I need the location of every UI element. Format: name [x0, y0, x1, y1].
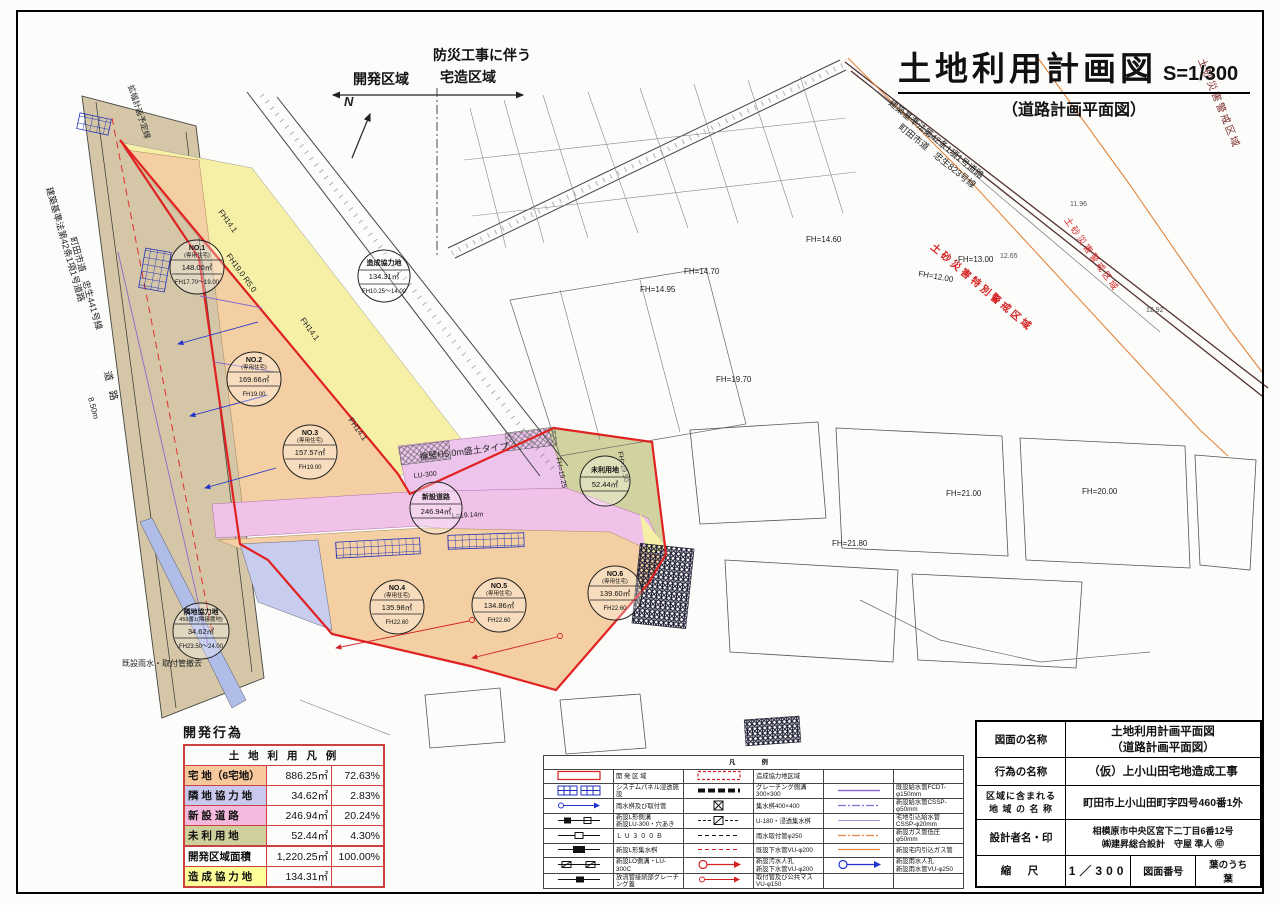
- svg-text:(専用住宅): (専用住宅): [297, 436, 323, 444]
- sheet-number-label: 図面番号: [1131, 855, 1196, 887]
- north-label: N: [344, 94, 354, 109]
- svg-text:FH19.00: FH19.00: [298, 465, 322, 471]
- legend-label: 新設LO側溝・LU-300C: [614, 858, 684, 873]
- legend-row: 開 発 区 域 造成協力地区域: [544, 770, 964, 784]
- dim-850: 8.50m: [86, 396, 101, 420]
- svg-text:(専用住宅): (専用住宅): [486, 589, 512, 597]
- svg-text:148.00㎡: 148.00㎡: [182, 263, 213, 272]
- title-subtitle: （道路計画平面図）: [898, 96, 1250, 120]
- titleblock-row: 縮 尺 1／300 図面番号 葉のうち 葉: [976, 855, 1261, 887]
- svg-text:157.57㎡: 157.57㎡: [295, 448, 326, 457]
- table-row: 隣 地 協 力 地 34.62㎡ 2.83%: [184, 786, 384, 806]
- sheet-number-value: 葉のうち 葉: [1196, 855, 1261, 887]
- svg-text:NO.2: NO.2: [246, 357, 262, 364]
- svg-text:(専用住宅): (専用住宅): [241, 363, 267, 371]
- landuse-label: 新 設 道 路: [184, 806, 266, 826]
- table-row: 新 設 道 路 246.94㎡ 20.24%: [184, 806, 384, 826]
- legend-symbol-l-basin-icon: [544, 844, 614, 858]
- svg-text:135.98㎡: 135.98㎡: [382, 603, 413, 612]
- landuse-label: 造 成 協 力 地: [184, 867, 266, 888]
- title-block: 図面の名称 土地利用計画平面図 （道路計画平面図） 行為の名称 （仮）上小山田宅…: [975, 720, 1262, 888]
- svg-text:NO.4: NO.4: [389, 585, 405, 592]
- legend-symbol-rain-pipe-icon: [684, 829, 754, 844]
- removal-note: 既設雨水・取付管撤去: [122, 658, 202, 668]
- titleblock-value: 町田市上小山田町字四号460番1外: [1066, 785, 1262, 819]
- landuse-area: 246.94㎡: [266, 806, 331, 826]
- circle-new-road: 新設道路 246.94㎡: [410, 482, 462, 534]
- svg-text:(専用住宅): (専用住宅): [184, 251, 210, 259]
- legend-symbol-rain-basin-icon: [544, 799, 614, 814]
- legend-row: システムパネル浸透施設 グレーチング側溝300×300 既設給水管FCDT-φ1…: [544, 784, 964, 799]
- titleblock-label: 設計者名・印: [976, 819, 1066, 855]
- svg-text:FH19.00: FH19.00: [242, 392, 266, 398]
- scale-label: 縮 尺: [976, 855, 1066, 887]
- table-row: 宅 地（6宅地） 886.25㎡ 72.63%: [184, 766, 384, 786]
- legend-symbol-sewer-manhole-icon: [684, 858, 754, 873]
- drawing-sheet: 開発区域 防災工事に伴う 宅造区域 N 建築基準法第42条1項1号道路 町田市道…: [0, 0, 1280, 905]
- legend-symbol-lo-gutter-icon: [544, 858, 614, 873]
- legend-symbol-grating-gutter-icon: [684, 784, 754, 799]
- circle-unused-land: 未利用地 52.44㎡: [580, 456, 630, 506]
- titleblock-row: 図面の名称 土地利用計画平面図 （道路計画平面図）: [976, 721, 1261, 757]
- legend-label: 開 発 区 域: [614, 770, 684, 784]
- svg-text:246.94㎡: 246.94㎡: [421, 507, 452, 516]
- legend-symbol-service-water-icon: [824, 814, 894, 829]
- titleblock-label: 図面の名称: [976, 721, 1066, 757]
- landuse-table: 開発行為 土 地 利 用 凡 例 宅 地（6宅地） 886.25㎡ 72.63%…: [183, 722, 385, 888]
- svg-text:未利用地: 未利用地: [591, 465, 619, 474]
- legend-row: 雨水桝及び取付管 集水桝400×400 新設給水管CSSP-φ50mm: [544, 799, 964, 814]
- legend-symbol-catch-basin-icon: [684, 799, 754, 814]
- legend-row: 放流管接続部グレーチング蓋 取付管及び公共マス VU-φ150: [544, 873, 964, 888]
- landuse-area: 134.31㎡: [266, 867, 331, 888]
- legend-label: グレーチング側溝300×300: [754, 784, 824, 799]
- lot-circle-no3: NO.3 (専用住宅) 157.57㎡ FH19.00: [283, 425, 337, 479]
- landuse-header: 土 地 利 用 凡 例: [184, 745, 384, 766]
- landuse-pct: 4.30%: [332, 826, 384, 847]
- legend-symbol-blank-icon: [824, 873, 894, 888]
- legend-symbol-blank-icon: [824, 770, 894, 784]
- legend-symbol-l-gutter-icon: [544, 814, 614, 829]
- landuse-label: 未 利 用 地: [184, 826, 266, 847]
- legend-label: 既設給水管FCDT-φ150mm: [894, 784, 964, 799]
- legend-symbol-gas-main-icon: [824, 829, 894, 844]
- lot-circle-no1: NO.1 (専用住宅) 148.00㎡ FH17.70～19.00: [170, 240, 224, 294]
- svg-text:造成協力地: 造成協力地: [367, 258, 402, 267]
- titleblock-row: 区域に含まれる 地 域 の 名 称 町田市上小山田町字四号460番1外: [976, 785, 1261, 819]
- legend-label: 既設下水管VU-φ200: [754, 844, 824, 858]
- legend-symbol-development-area-icon: [544, 770, 614, 784]
- svg-text:FH22.60: FH22.60: [385, 620, 409, 626]
- table-row: 未 利 用 地 52.44㎡ 4.30%: [184, 826, 384, 847]
- fh-12-00: FH=12.00: [918, 269, 955, 284]
- landuse-area: 1,220.25㎡: [266, 846, 331, 867]
- svg-text:NO.3: NO.3: [302, 430, 318, 437]
- legend-label: [894, 873, 964, 888]
- fh-20-00: FH=20.00: [1082, 487, 1118, 496]
- zone-label-right-2: 宅造区域: [440, 69, 496, 85]
- legend-label: 新設雨水人孔 新設雨水管VU-φ250: [894, 858, 964, 873]
- legend-row: 新設L形集水桝 既設下水管VU-φ200 新設宅内引込ガス管: [544, 844, 964, 858]
- legend-label: 新設L形側溝 新設LU-300・穴あき: [614, 814, 684, 829]
- legend-label: 新設給水管CSSP-φ50mm: [894, 799, 964, 814]
- titleblock-value: 相模原市中央区宮下二丁目6番12号 ㈱建昇総合設計 守屋 準人 ㊞: [1066, 819, 1262, 855]
- legend-row: Ｌ Ｕ ３ ０ ０ Ｂ 雨水取付管φ250 新設ガス管低圧φ50mm: [544, 829, 964, 844]
- legend-symbol-grading-zone-icon: [684, 770, 754, 784]
- legend-label: 新設ガス管低圧φ50mm: [894, 829, 964, 844]
- legend-label: 宅地引込給水管 CSSP-φ20mm: [894, 814, 964, 829]
- zone-label-left: 開発区域: [353, 71, 409, 87]
- legend-title: 凡 例: [544, 756, 964, 770]
- legend-row: 新設LO側溝・LU-300C 新設汚水人孔 新設下水管VU-φ200 新設雨水人…: [544, 858, 964, 873]
- legend-symbol-panel-icon: [544, 784, 614, 799]
- fh-14-60: FH=14.60: [806, 235, 842, 244]
- page-title: 土地利用計画図: [898, 50, 1157, 87]
- svg-text:FH22.60: FH22.60: [487, 618, 511, 624]
- svg-text:459番1(隣接農地): 459番1(隣接農地): [179, 615, 223, 623]
- landuse-pct: 72.63%: [332, 766, 384, 786]
- svg-text:139.60㎡: 139.60㎡: [600, 589, 631, 598]
- legend-symbol-outlet-grating-icon: [544, 873, 614, 888]
- legend-row: 新設L形側溝 新設LU-300・穴あき U-180・浸透集水桝 宅地引込給水管 …: [544, 814, 964, 829]
- drawing-title: 土地利用計画図S=1/300 （道路計画平面図）: [898, 42, 1250, 120]
- legend-label: 放流管接続部グレーチング蓋: [614, 873, 684, 888]
- landuse-label: 宅 地（6宅地）: [184, 766, 266, 786]
- landuse-header-row: 土 地 利 用 凡 例: [184, 745, 384, 766]
- north-arrow-icon: [352, 114, 370, 158]
- lot-circle-no4: NO.4 (専用住宅) 135.98㎡ FH22.60: [370, 580, 424, 634]
- legend-title-row: 凡 例: [544, 756, 964, 770]
- lot-circle-no5: NO.5 (専用住宅) 134.86㎡ FH22.60: [472, 578, 526, 632]
- svg-text:FH17.70～19.00: FH17.70～19.00: [175, 280, 220, 286]
- spot-elev-3: 11.96: [1070, 201, 1087, 208]
- legend-label: U-180・浸透集水桝: [754, 814, 824, 829]
- legend-label: Ｌ Ｕ ３ ０ ０ Ｂ: [614, 829, 684, 844]
- legend-label: 雨水桝及び取付管: [614, 799, 684, 814]
- svg-text:FH22.60: FH22.60: [603, 606, 627, 612]
- svg-text:169.66㎡: 169.66㎡: [239, 375, 270, 384]
- titleblock-label: 区域に含まれる 地 域 の 名 称: [976, 785, 1066, 819]
- legend-label: 集水桝400×400: [754, 799, 824, 814]
- hazard-zone-label-2: 土砂災害警戒区域: [1062, 215, 1121, 293]
- svg-text:NO.1: NO.1: [189, 245, 205, 252]
- legend-symbol-u180-icon: [684, 814, 754, 829]
- titleblock-value: （仮）上小山田宅地造成工事: [1066, 757, 1262, 785]
- fh-13-00: FH=13.00: [958, 255, 994, 264]
- landuse-pct: 100.00%: [332, 846, 384, 867]
- svg-text:NO.5: NO.5: [491, 583, 507, 590]
- spot-elev-2: 12.92: [1146, 307, 1164, 314]
- legend-table: 凡 例 開 発 区 域 造成協力地区域 システムパネル浸透施設 グレーチング側溝…: [543, 755, 964, 889]
- landuse-label: 開発区域面積: [184, 846, 266, 867]
- svg-text:隣地協力地: 隣地協力地: [184, 607, 219, 616]
- svg-text:52.44㎡: 52.44㎡: [592, 480, 619, 489]
- legend-symbol-service-gas-icon: [824, 844, 894, 858]
- titleblock-label: 行為の名称: [976, 757, 1066, 785]
- legend-label: システムパネル浸透施設: [614, 784, 684, 799]
- svg-text:FH23.50～24.00: FH23.50～24.00: [179, 644, 224, 650]
- legend-label: 新設宅内引込ガス管: [894, 844, 964, 858]
- legend-label: 新設L形集水桝: [614, 844, 684, 858]
- titleblock-row: 行為の名称 （仮）上小山田宅地造成工事: [976, 757, 1261, 785]
- landuse-caption: 開発行為: [183, 722, 385, 741]
- svg-text:(専用住宅): (専用住宅): [384, 591, 410, 599]
- svg-text:134.31㎡: 134.31㎡: [369, 272, 400, 281]
- landuse-area: 886.25㎡: [266, 766, 331, 786]
- legend-symbol-water-main-icon: [824, 784, 894, 799]
- svg-text:FH10.25～14.00: FH10.25～14.00: [362, 289, 407, 295]
- svg-text:新設道路: 新設道路: [422, 492, 451, 501]
- landuse-area: 52.44㎡: [266, 826, 331, 847]
- landuse-pct: 20.24%: [332, 806, 384, 826]
- fh-19-70: FH=19.70: [716, 375, 752, 384]
- spot-elev-1: 12.65: [1000, 253, 1018, 260]
- svg-text:(専用住宅): (専用住宅): [602, 577, 628, 585]
- table-row: 造 成 協 力 地 134.31㎡: [184, 867, 384, 888]
- legend-symbol-existing-sewer-icon: [684, 844, 754, 858]
- svg-text:134.86㎡: 134.86㎡: [484, 601, 515, 610]
- legend-symbol-rain-manhole-icon: [824, 858, 894, 873]
- fh-14-70: FH=14.70: [684, 267, 720, 276]
- lot-circle-no2: NO.2 (専用住宅) 169.66㎡ FH19.00: [227, 352, 281, 406]
- titleblock-row: 設計者名・印 相模原市中央区宮下二丁目6番12号 ㈱建昇総合設計 守屋 準人 ㊞: [976, 819, 1261, 855]
- table-row: 開発区域面積 1,220.25㎡ 100.00%: [184, 846, 384, 867]
- landuse-label: 隣 地 協 力 地: [184, 786, 266, 806]
- zone-label-right-1: 防災工事に伴う: [433, 47, 531, 63]
- title-scale: S=1/300: [1163, 63, 1238, 85]
- landuse-area: 34.62㎡: [266, 786, 331, 806]
- scale-value: 1／300: [1066, 855, 1131, 887]
- legend-label: 新設汚水人孔 新設下水管VU-φ200: [754, 858, 824, 873]
- legend-label: [894, 770, 964, 784]
- fh-21-80: FH=21.80: [832, 539, 868, 548]
- lot-circle-no6: NO.6 (専用住宅) 139.60㎡ FH22.60: [588, 566, 642, 620]
- legend-label: 取付管及び公共マス VU-φ150: [754, 873, 824, 888]
- svg-text:34.62㎡: 34.62㎡: [188, 627, 215, 636]
- circle-neighbor-cooperation: 隣地協力地 459番1(隣接農地) 34.62㎡ FH23.50～24.00: [173, 603, 229, 659]
- fh-21-00: FH=21.00: [946, 489, 982, 498]
- fh-14-95: FH=14.95: [640, 285, 676, 294]
- legend-symbol-new-water-icon: [824, 799, 894, 814]
- landuse-pct: [332, 867, 384, 888]
- legend-label: 雨水取付管φ250: [754, 829, 824, 844]
- legend-symbol-public-mass-icon: [684, 873, 754, 888]
- legend-label: 造成協力地区域: [754, 770, 824, 784]
- landuse-pct: 2.83%: [332, 786, 384, 806]
- titleblock-value: 土地利用計画平面図 （道路計画平面図）: [1066, 721, 1262, 757]
- legend-symbol-lu300b-icon: [544, 829, 614, 844]
- circle-grading-cooperation: 造成協力地 134.31㎡ FH10.25～14.00: [358, 250, 410, 302]
- svg-text:NO.6: NO.6: [607, 571, 623, 578]
